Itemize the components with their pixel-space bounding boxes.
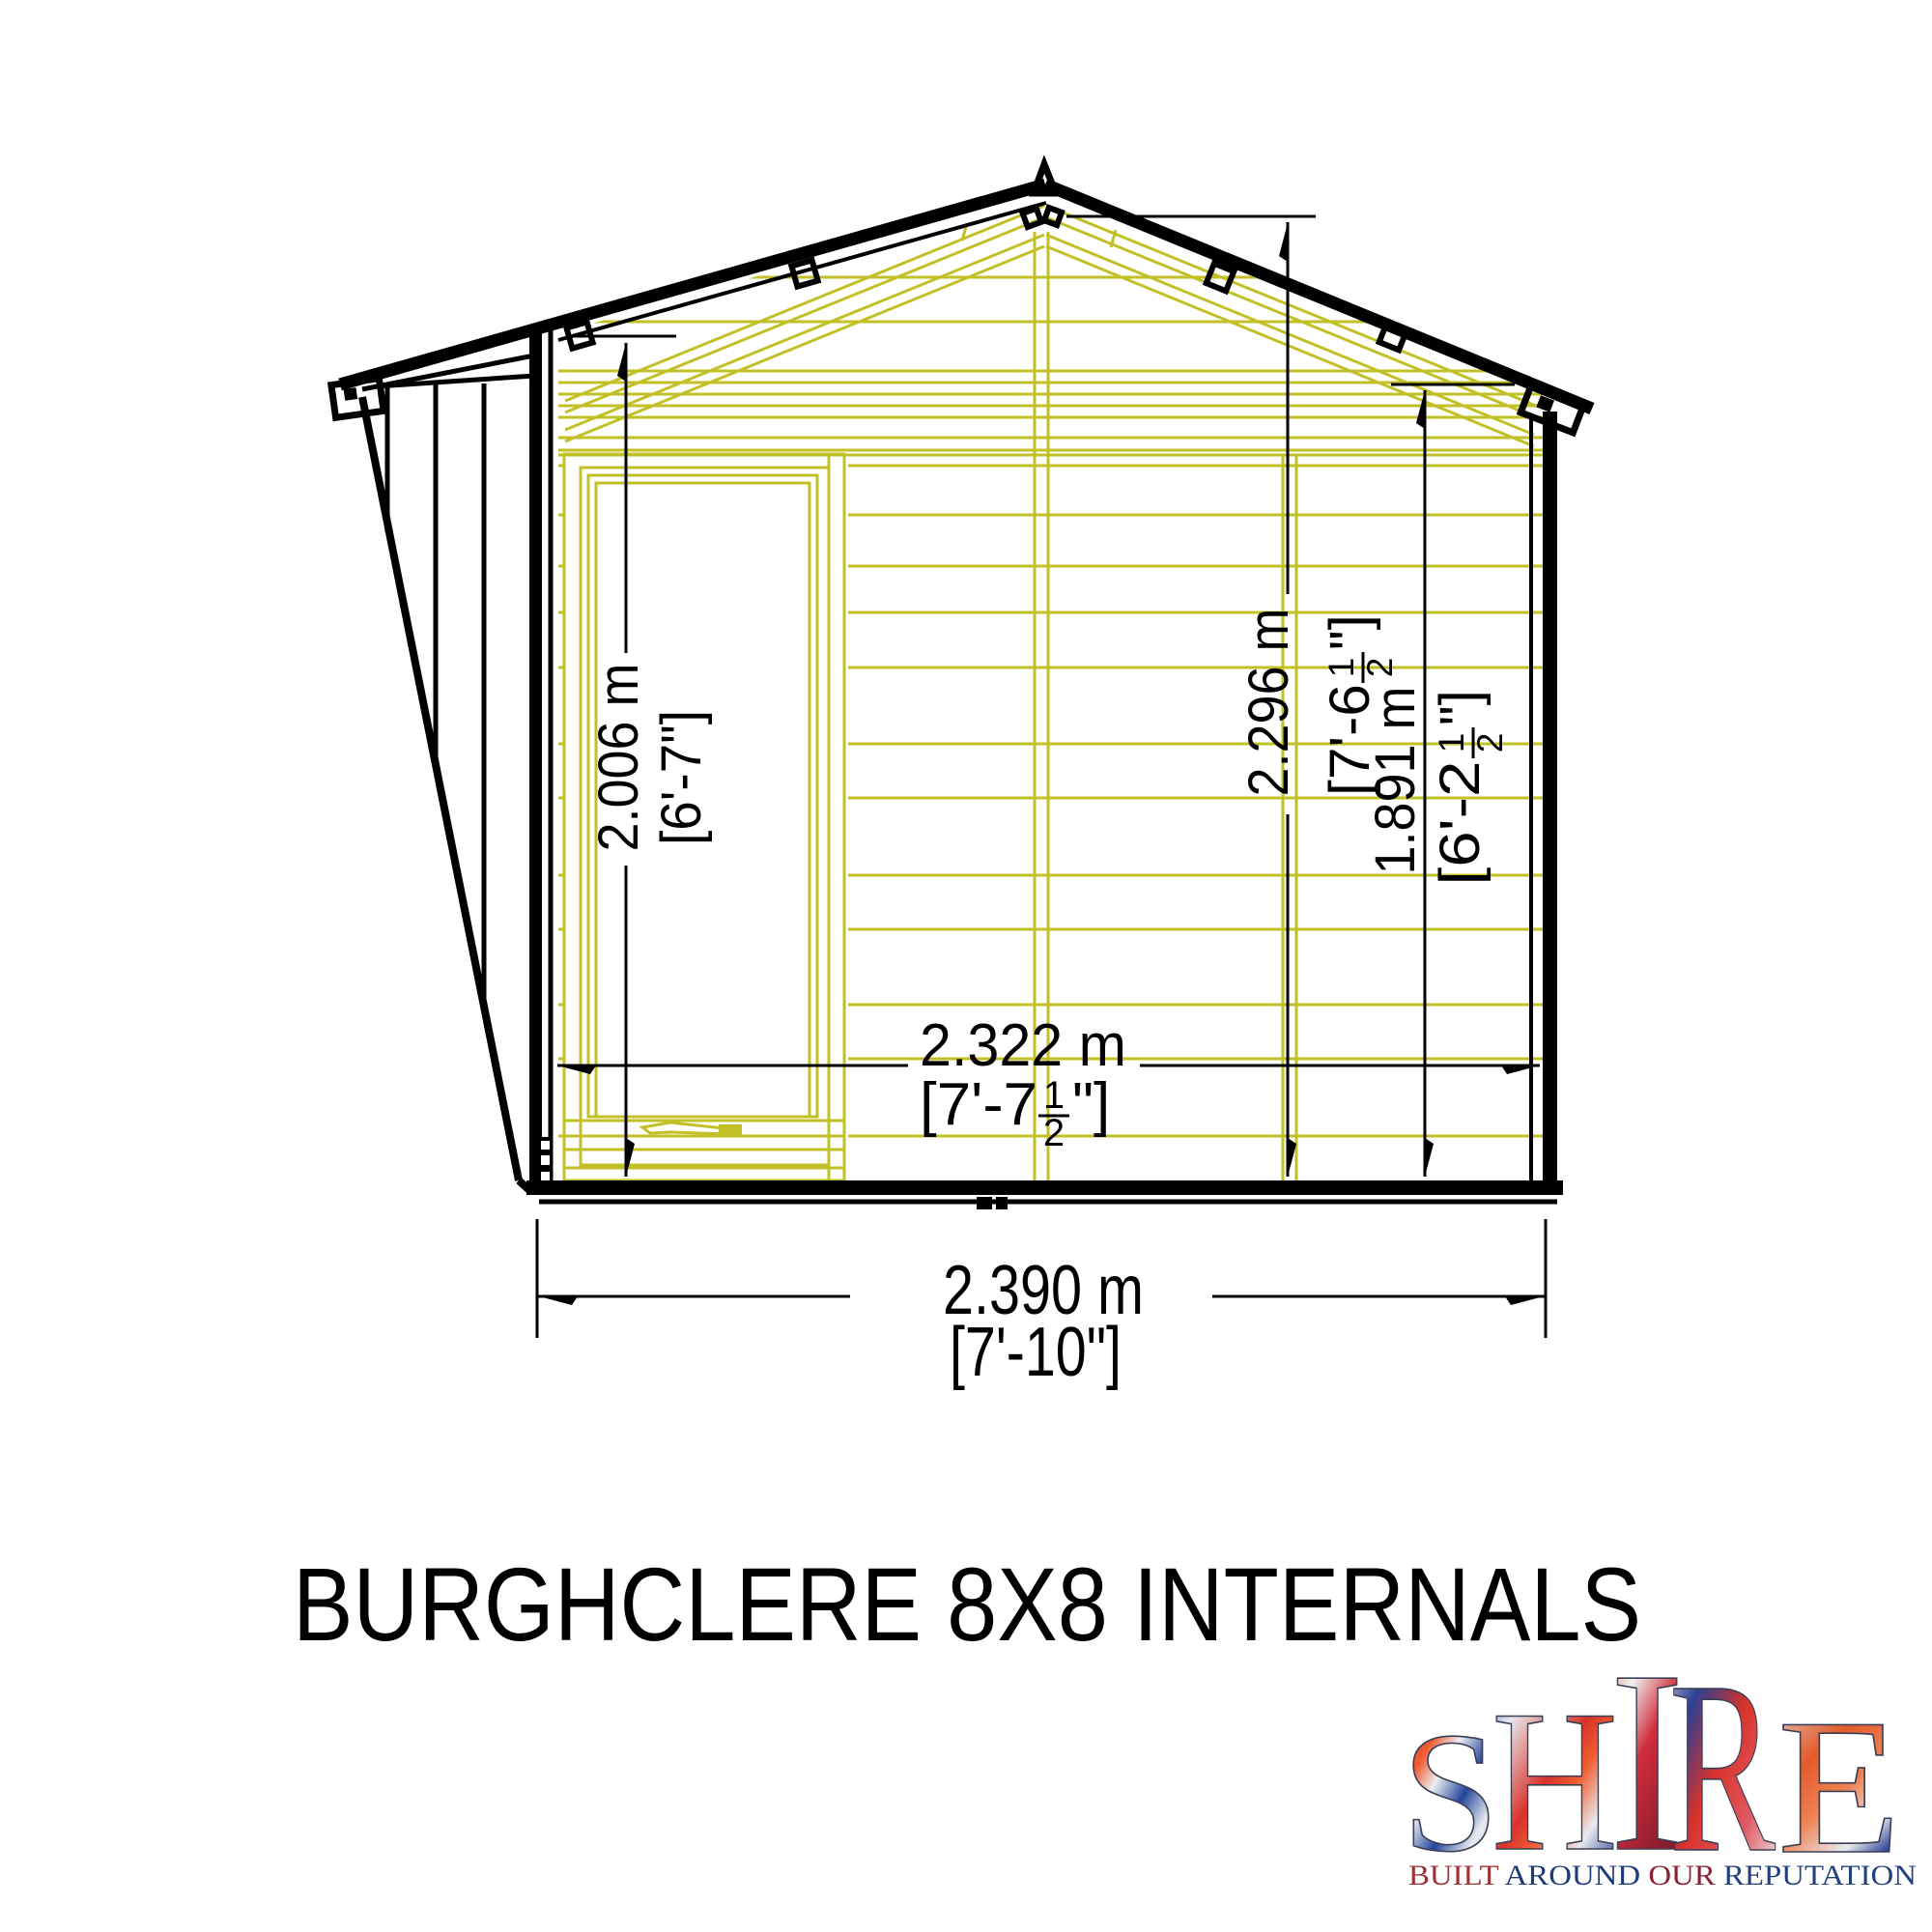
svg-text:2: 2 — [1043, 1112, 1065, 1154]
svg-text:[6'-7"]: [6'-7"] — [650, 710, 713, 845]
svg-text:"]: "] — [1319, 614, 1381, 650]
svg-text:1: 1 — [1043, 1074, 1065, 1117]
svg-text:[6'-2: [6'-2 — [1429, 761, 1492, 886]
svg-text:2.296 m: 2.296 m — [1237, 609, 1300, 797]
svg-text:2.006 m: 2.006 m — [587, 664, 650, 852]
svg-text:1: 1 — [1321, 658, 1361, 678]
svg-text:2.322 m: 2.322 m — [920, 1012, 1126, 1079]
svg-text:1: 1 — [1432, 733, 1471, 753]
svg-text:[7'-10"]: [7'-10"] — [950, 1314, 1122, 1391]
svg-text:"]: "] — [1072, 1071, 1110, 1138]
svg-text:1.891 m: 1.891 m — [1364, 687, 1427, 875]
svg-text:BUILT AROUND OUR REPUTATION: BUILT AROUND OUR REPUTATION — [1408, 1860, 1917, 1891]
svg-text:[7'-7: [7'-7 — [920, 1071, 1037, 1138]
svg-text:2: 2 — [1360, 658, 1400, 678]
svg-text:BURGHCLERE 8X8 INTERNALS: BURGHCLERE 8X8 INTERNALS — [293, 1546, 1641, 1662]
svg-text:2: 2 — [1470, 733, 1510, 753]
svg-text:"]: "] — [1429, 690, 1492, 725]
